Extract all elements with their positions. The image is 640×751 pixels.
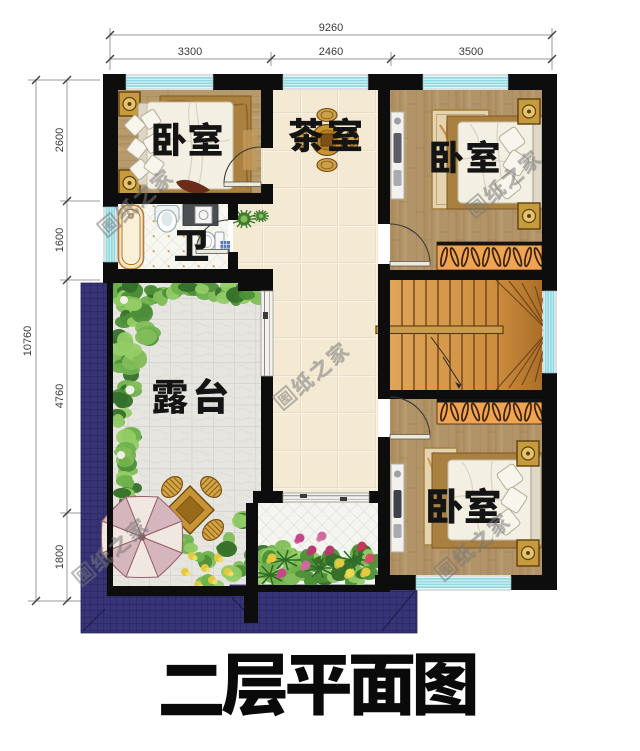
svg-text:1800: 1800 [54, 545, 66, 569]
svg-text:2600: 2600 [54, 128, 66, 152]
svg-text:2460: 2460 [319, 46, 343, 58]
svg-text:3500: 3500 [459, 46, 483, 58]
svg-text:3300: 3300 [178, 46, 202, 58]
svg-text:9260: 9260 [319, 22, 343, 34]
svg-text:10760: 10760 [22, 326, 34, 357]
svg-text:4760: 4760 [54, 384, 66, 408]
svg-text:1600: 1600 [54, 228, 66, 252]
